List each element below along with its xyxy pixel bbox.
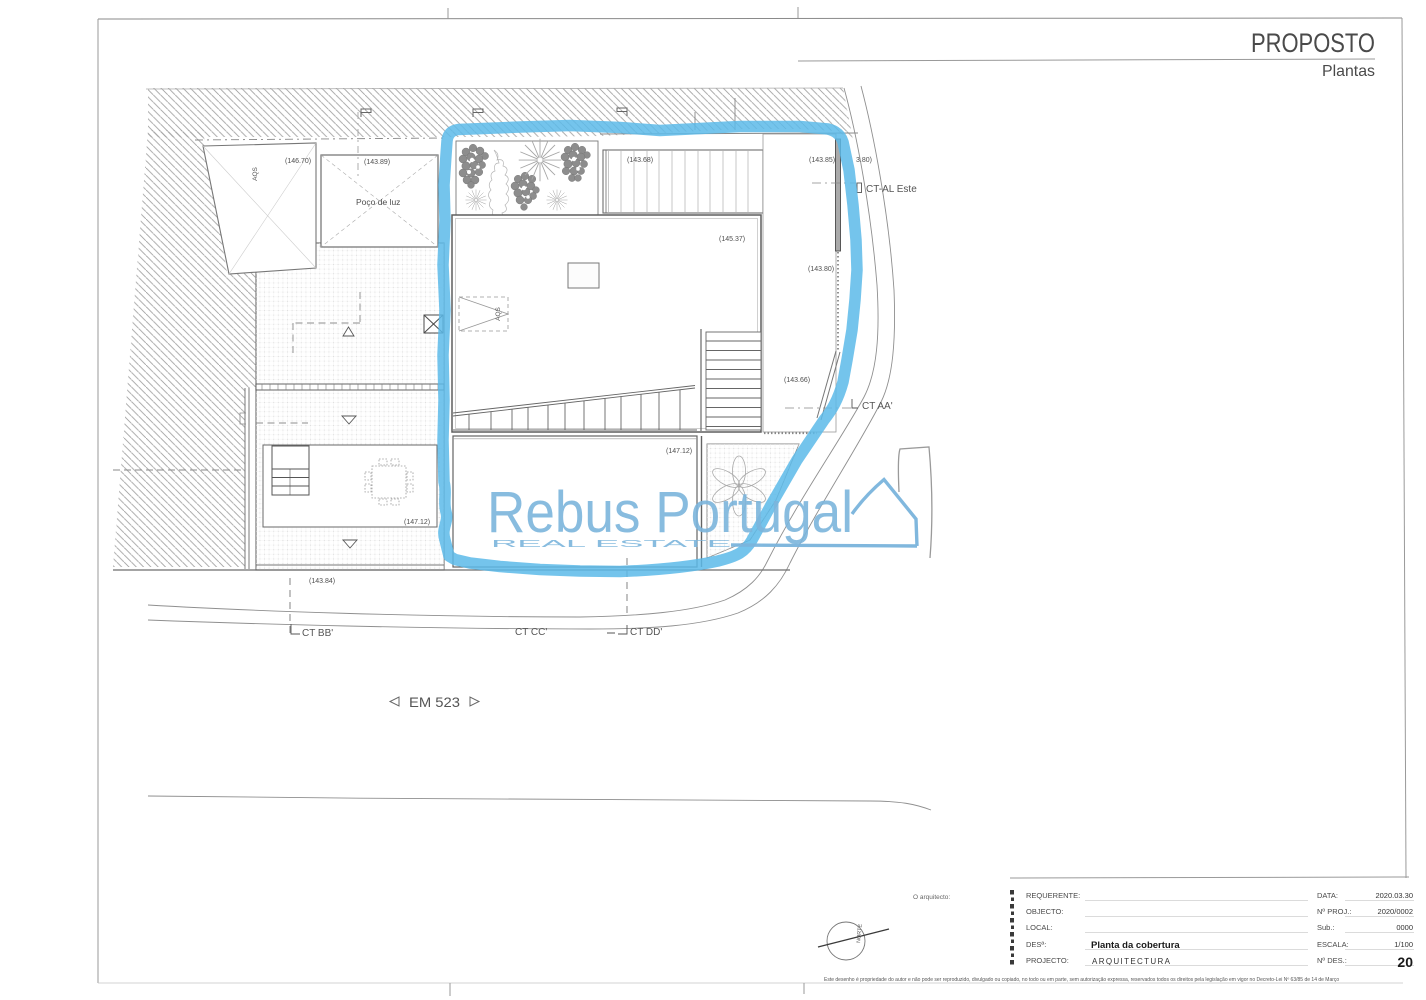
svg-text:(143.89): (143.89) [364, 159, 390, 166]
svg-text:(143.84): (143.84) [309, 578, 335, 585]
svg-text:ARQUITECTURA: ARQUITECTURA [1092, 957, 1171, 966]
svg-text:REQUERENTE:: REQUERENTE: [1026, 891, 1080, 900]
svg-text:REAL ESTATE: REAL ESTATE [491, 538, 731, 550]
svg-text:(147.12): (147.12) [404, 519, 430, 526]
svg-text:(147.12): (147.12) [666, 448, 692, 455]
svg-text:1/100: 1/100 [1394, 940, 1413, 949]
svg-text:(146.70): (146.70) [285, 158, 311, 165]
svg-text:Nº DES.:: Nº DES.: [1317, 956, 1347, 965]
svg-text:(145.37): (145.37) [719, 236, 745, 243]
svg-text:PROPOSTO: PROPOSTO [1251, 28, 1375, 58]
svg-text:Rebus Portugal: Rebus Portugal [487, 480, 853, 545]
svg-text:CT CC': CT CC' [515, 627, 547, 638]
svg-text:NORTE: NORTE [856, 923, 864, 943]
svg-text:AQS: AQS [252, 166, 259, 180]
svg-text:2020/0002: 2020/0002 [1378, 907, 1413, 916]
svg-text:20: 20 [1397, 954, 1413, 970]
svg-text:Sub.:: Sub.: [1317, 923, 1335, 932]
svg-text:DATA:: DATA: [1317, 891, 1338, 900]
svg-text:Este desenho é propriedade do: Este desenho é propriedade do autor e nã… [824, 977, 1339, 983]
svg-text:LOCAL:: LOCAL: [1026, 923, 1053, 932]
svg-text:CT BB': CT BB' [302, 628, 333, 639]
svg-text:Plantas: Plantas [1322, 63, 1375, 80]
svg-text:DESª:: DESª: [1026, 940, 1046, 949]
svg-text:(143.66): (143.66) [784, 377, 810, 384]
svg-text:CT-AL Este: CT-AL Este [866, 184, 917, 195]
svg-text:0000: 0000 [1396, 923, 1413, 932]
svg-text:EM 523: EM 523 [409, 694, 460, 710]
svg-text:ESCALA:: ESCALA: [1317, 940, 1349, 949]
svg-text:Nº PROJ.:: Nº PROJ.: [1317, 907, 1351, 916]
svg-text:CT DD': CT DD' [630, 627, 662, 638]
svg-text:Poço de luz: Poço de luz [356, 197, 400, 207]
svg-text:(143.85): (143.85) [809, 157, 835, 164]
svg-text:AQS: AQS [495, 306, 502, 320]
svg-text:O arquitecto:: O arquitecto: [913, 894, 950, 901]
svg-text:CT AA': CT AA' [862, 401, 893, 412]
svg-text:(143.68): (143.68) [627, 157, 653, 164]
svg-text:OBJECTO:: OBJECTO: [1026, 907, 1063, 916]
svg-text:(143.80): (143.80) [808, 266, 834, 273]
svg-text:3.80): 3.80) [856, 157, 872, 164]
svg-text:PROJECTO:: PROJECTO: [1026, 956, 1069, 965]
svg-text:2020.03.30: 2020.03.30 [1375, 891, 1413, 900]
